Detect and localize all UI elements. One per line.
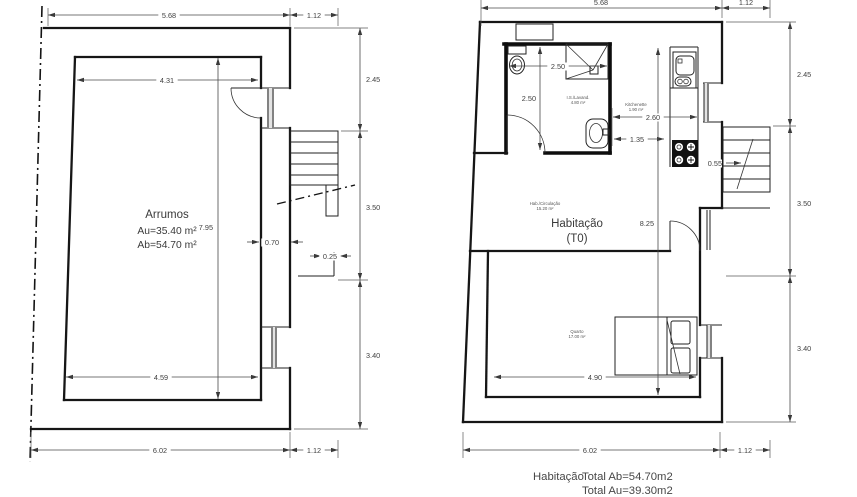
bedroom-door: [670, 221, 700, 251]
door-swing-arc: [231, 88, 261, 118]
burner: [675, 156, 683, 164]
room-area-ab: Ab=54.70 m²: [137, 240, 197, 251]
room-area-au: Au=35.40 m²: [137, 226, 197, 237]
toilet-tank: [508, 46, 526, 54]
stair-treads: [290, 142, 338, 175]
left-window: [261, 327, 290, 368]
stair-direction-line: [737, 139, 753, 189]
break-line: [277, 185, 355, 204]
footer-total-ab: Total Ab=54.70m2: [582, 471, 673, 483]
side-window: [707, 210, 710, 250]
property-line: [30, 6, 42, 462]
wall-segment: [64, 57, 75, 400]
dimension-label: 3.50: [797, 199, 811, 208]
floor-plan-page: 5.681.122.453.503.404.317.954.590.700.25…: [0, 0, 857, 497]
dimension-label: 2.45: [797, 70, 811, 79]
top-pillar: [516, 24, 553, 40]
dimension-label: 1.12: [738, 446, 752, 455]
shower-lines: [566, 44, 608, 79]
dimension-label: 2.60: [646, 113, 660, 122]
left-dimension-lines: [31, 8, 368, 458]
footer-caption: Habitação Total Ab=54.70m2 Total Au=39.3…: [533, 471, 673, 497]
dimension-label: 2.50: [551, 62, 565, 71]
dimension-label: 2.50: [522, 94, 536, 103]
dimension-label: 3.40: [366, 351, 380, 360]
pillow: [671, 348, 690, 373]
dimension-label: 5.68: [162, 11, 176, 20]
floor-plan-drawing: 5.681.122.453.503.404.317.954.590.700.25…: [0, 0, 857, 497]
dimension-label: 6.02: [583, 446, 597, 455]
room-name-arrumos: Arrumos: [145, 209, 189, 221]
dimension-label: 4.90: [588, 373, 602, 382]
dimension-label: 3.40: [797, 344, 811, 353]
dimension-label: 1.35: [630, 135, 644, 144]
room-small-label: 1.90 m²: [629, 107, 644, 112]
shower: [566, 44, 608, 79]
door-swing-arc: [507, 115, 545, 153]
stove: [672, 140, 698, 167]
right-room-small-labels: I.S./Lavand.4.80 m²Kitchenette1.90 m²Hab…: [530, 95, 648, 339]
interior-door: [231, 88, 261, 118]
entry-door: [261, 88, 290, 128]
footer-total-au: Total Au=39.30m2: [582, 485, 673, 497]
right-plan: 5.681.122.453.503.402.502.502.601.358.25…: [463, 0, 811, 458]
bedroom-window: [700, 325, 722, 358]
room-small-label: 4.80 m²: [571, 100, 586, 105]
faucet-knob: [684, 79, 689, 84]
dimension-label: 1.12: [307, 11, 321, 20]
dimension-label: 6.02: [153, 446, 167, 455]
wall-segment: [463, 22, 480, 422]
dimension-label: 4.59: [154, 373, 168, 382]
left-exterior-stairs: [290, 131, 338, 216]
right-exterior-stairs: [722, 127, 770, 208]
kitchen: [670, 47, 698, 167]
faucet-knob: [678, 79, 683, 84]
shower-tray: [566, 44, 608, 79]
dimension-label: 5.68: [594, 0, 608, 7]
sink-basin: [590, 124, 603, 143]
bathroom-sink: [586, 119, 609, 148]
stairs-outline: [290, 131, 338, 185]
left-plan: 5.681.122.453.503.404.317.954.590.700.25…: [30, 6, 380, 462]
dimension-label: 0.70: [265, 238, 279, 247]
room-small-label: 15.20 m²: [537, 206, 555, 211]
wall-segment: [486, 251, 488, 397]
toilet: [508, 46, 526, 74]
dimension-label: 0.25: [323, 252, 337, 261]
dimension-label: 8.25: [640, 219, 654, 228]
dimension-label: 0.55: [708, 159, 722, 168]
room-name-t0: (T0): [566, 233, 587, 245]
dimension-label: 7.95: [199, 223, 213, 232]
kitchen-tap: [678, 59, 682, 63]
dimension-label: 1.12: [739, 0, 753, 7]
dimension-label: 4.31: [160, 76, 174, 85]
kitchen-window: [703, 83, 722, 122]
bed-outline: [615, 317, 697, 375]
dimension-label: 1.12: [307, 446, 321, 455]
dimension-label: 3.50: [366, 203, 380, 212]
footer-room-label: Habitação: [533, 471, 584, 483]
burner: [675, 143, 683, 151]
pillow: [671, 321, 690, 344]
door-jamb: [261, 88, 290, 128]
room-small-label: 17.00 m²: [569, 334, 587, 339]
dimension-label: 2.45: [366, 75, 380, 84]
shower-drain: [590, 66, 598, 74]
room-name-habitacao: Habitação: [551, 218, 603, 230]
bathroom-door: [507, 115, 545, 153]
bed: [615, 317, 697, 375]
bed-fold-line: [667, 320, 680, 374]
toilet-bowl-inner: [512, 59, 522, 71]
door-swing-arc: [670, 221, 700, 251]
